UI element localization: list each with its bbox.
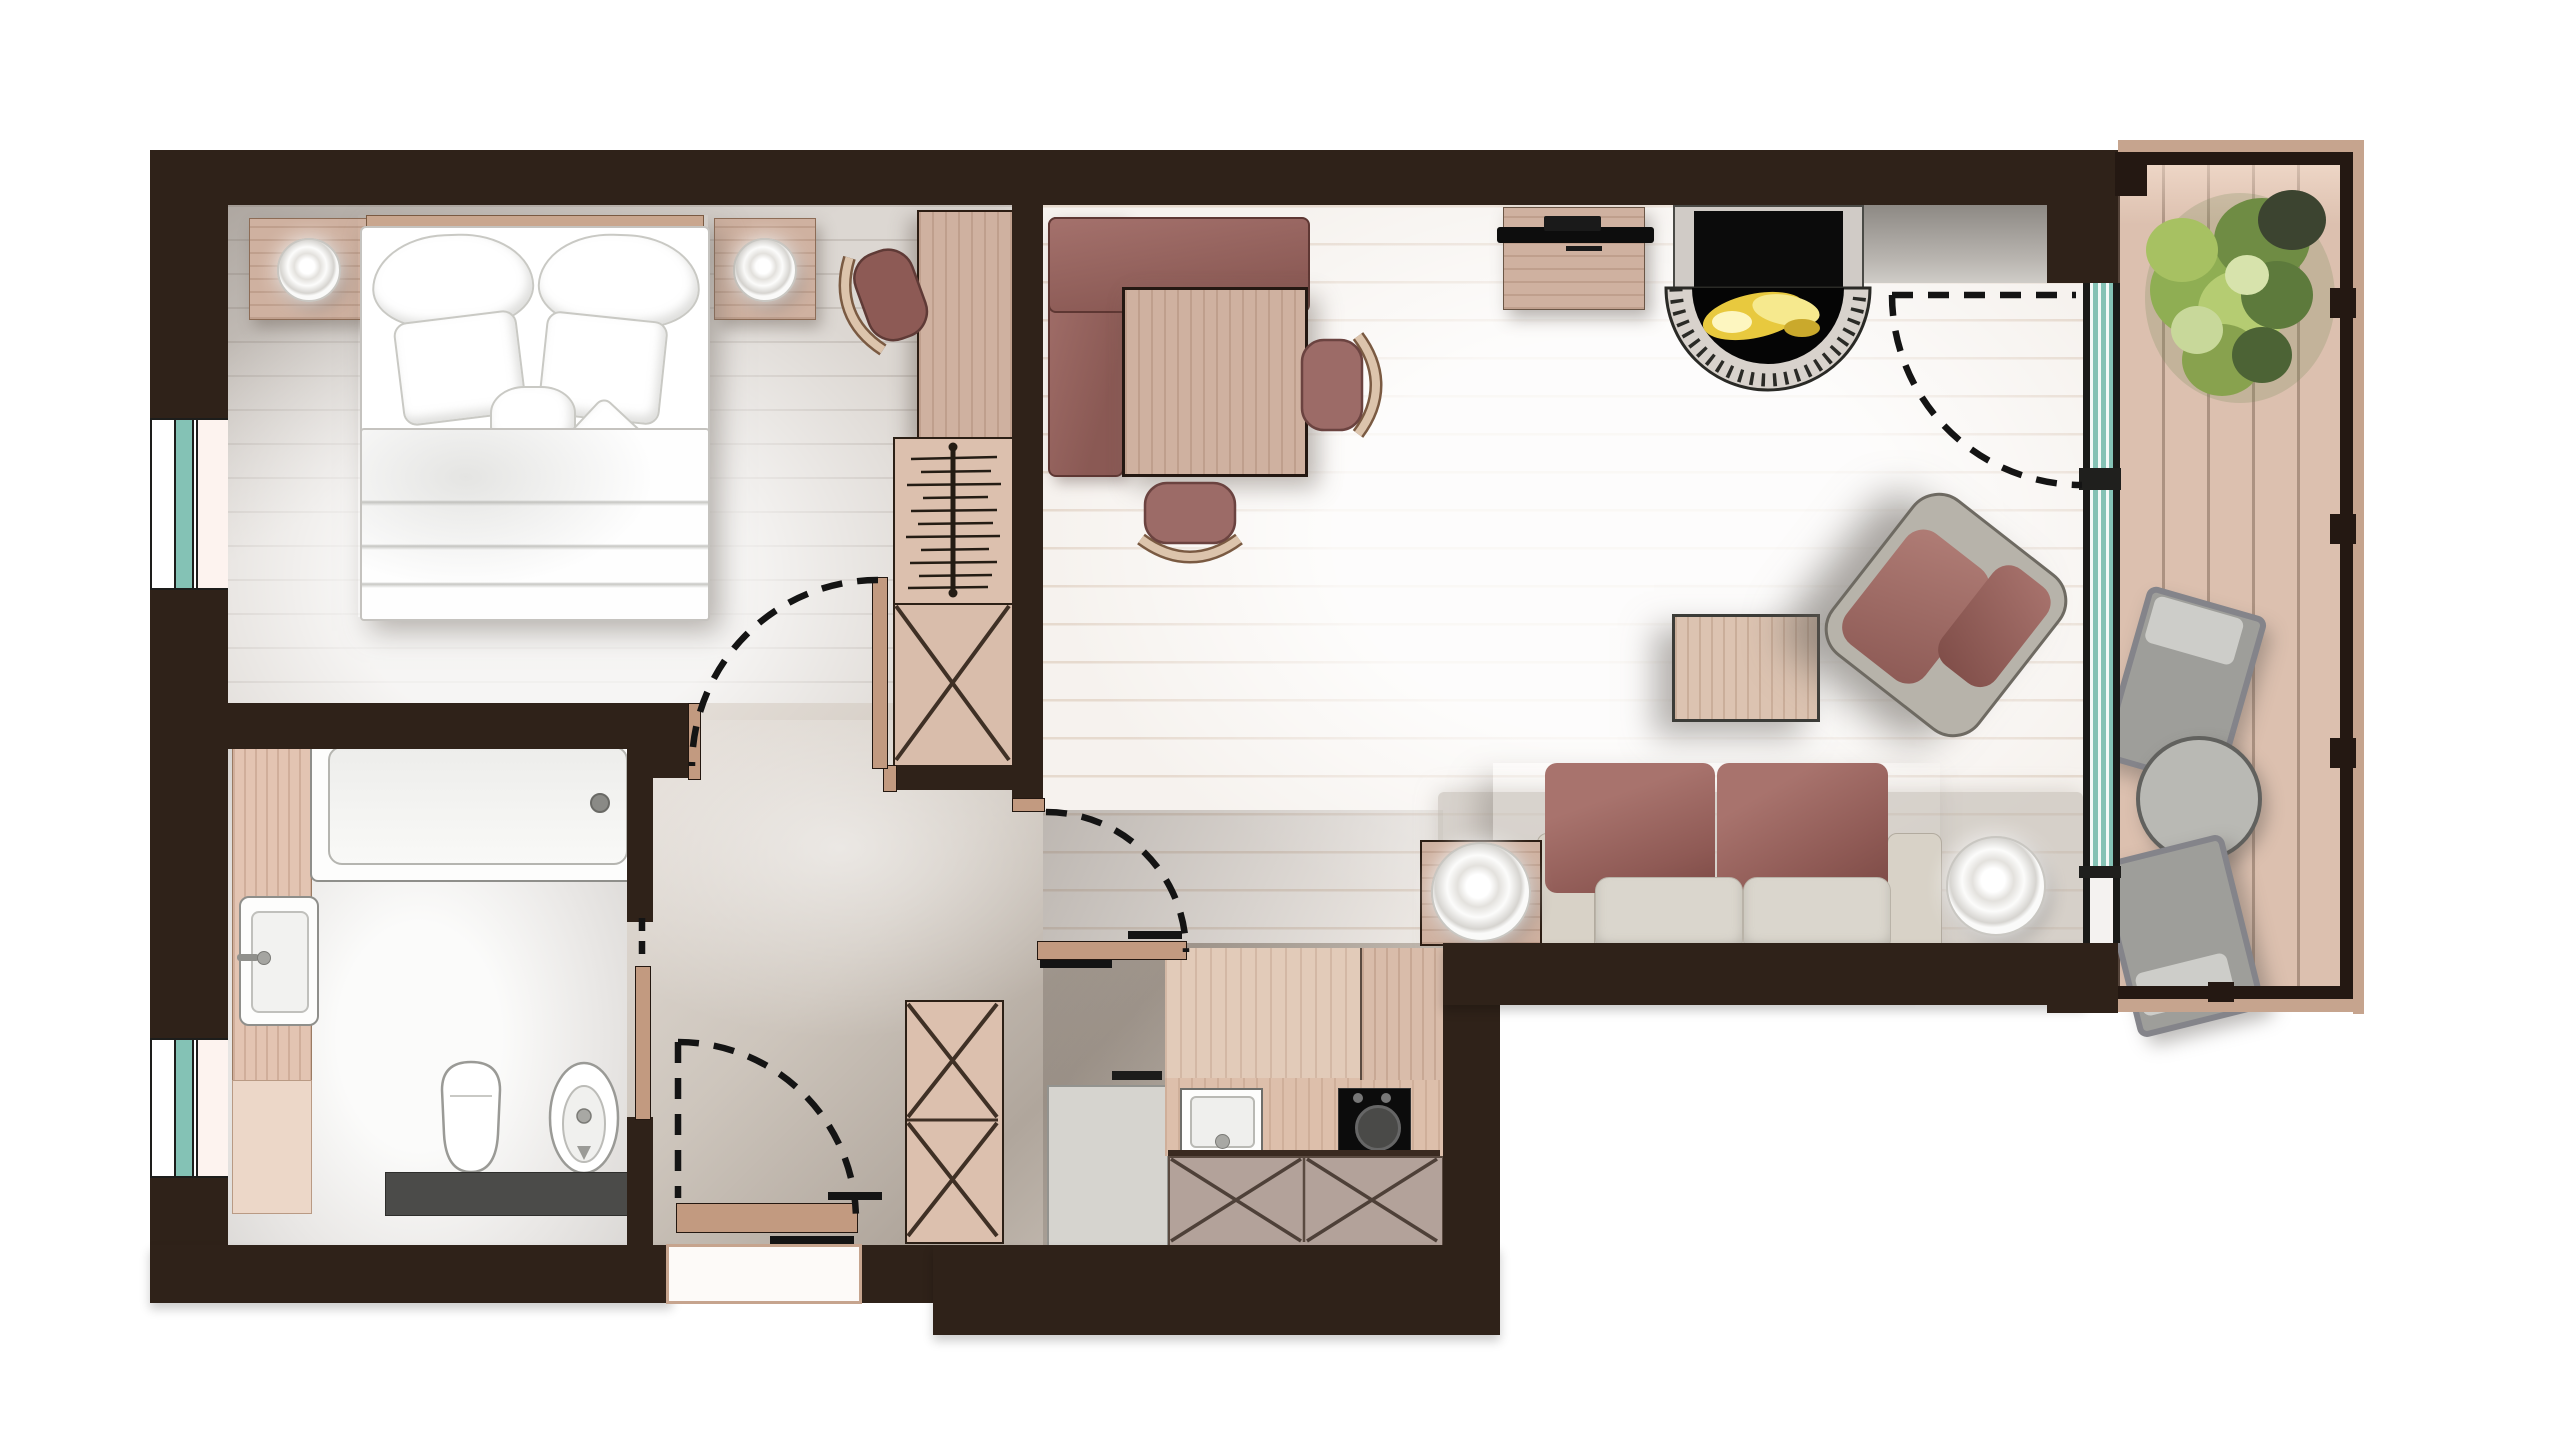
door-swing-arcs — [0, 0, 2560, 1440]
floor-plan — [0, 0, 2560, 1440]
